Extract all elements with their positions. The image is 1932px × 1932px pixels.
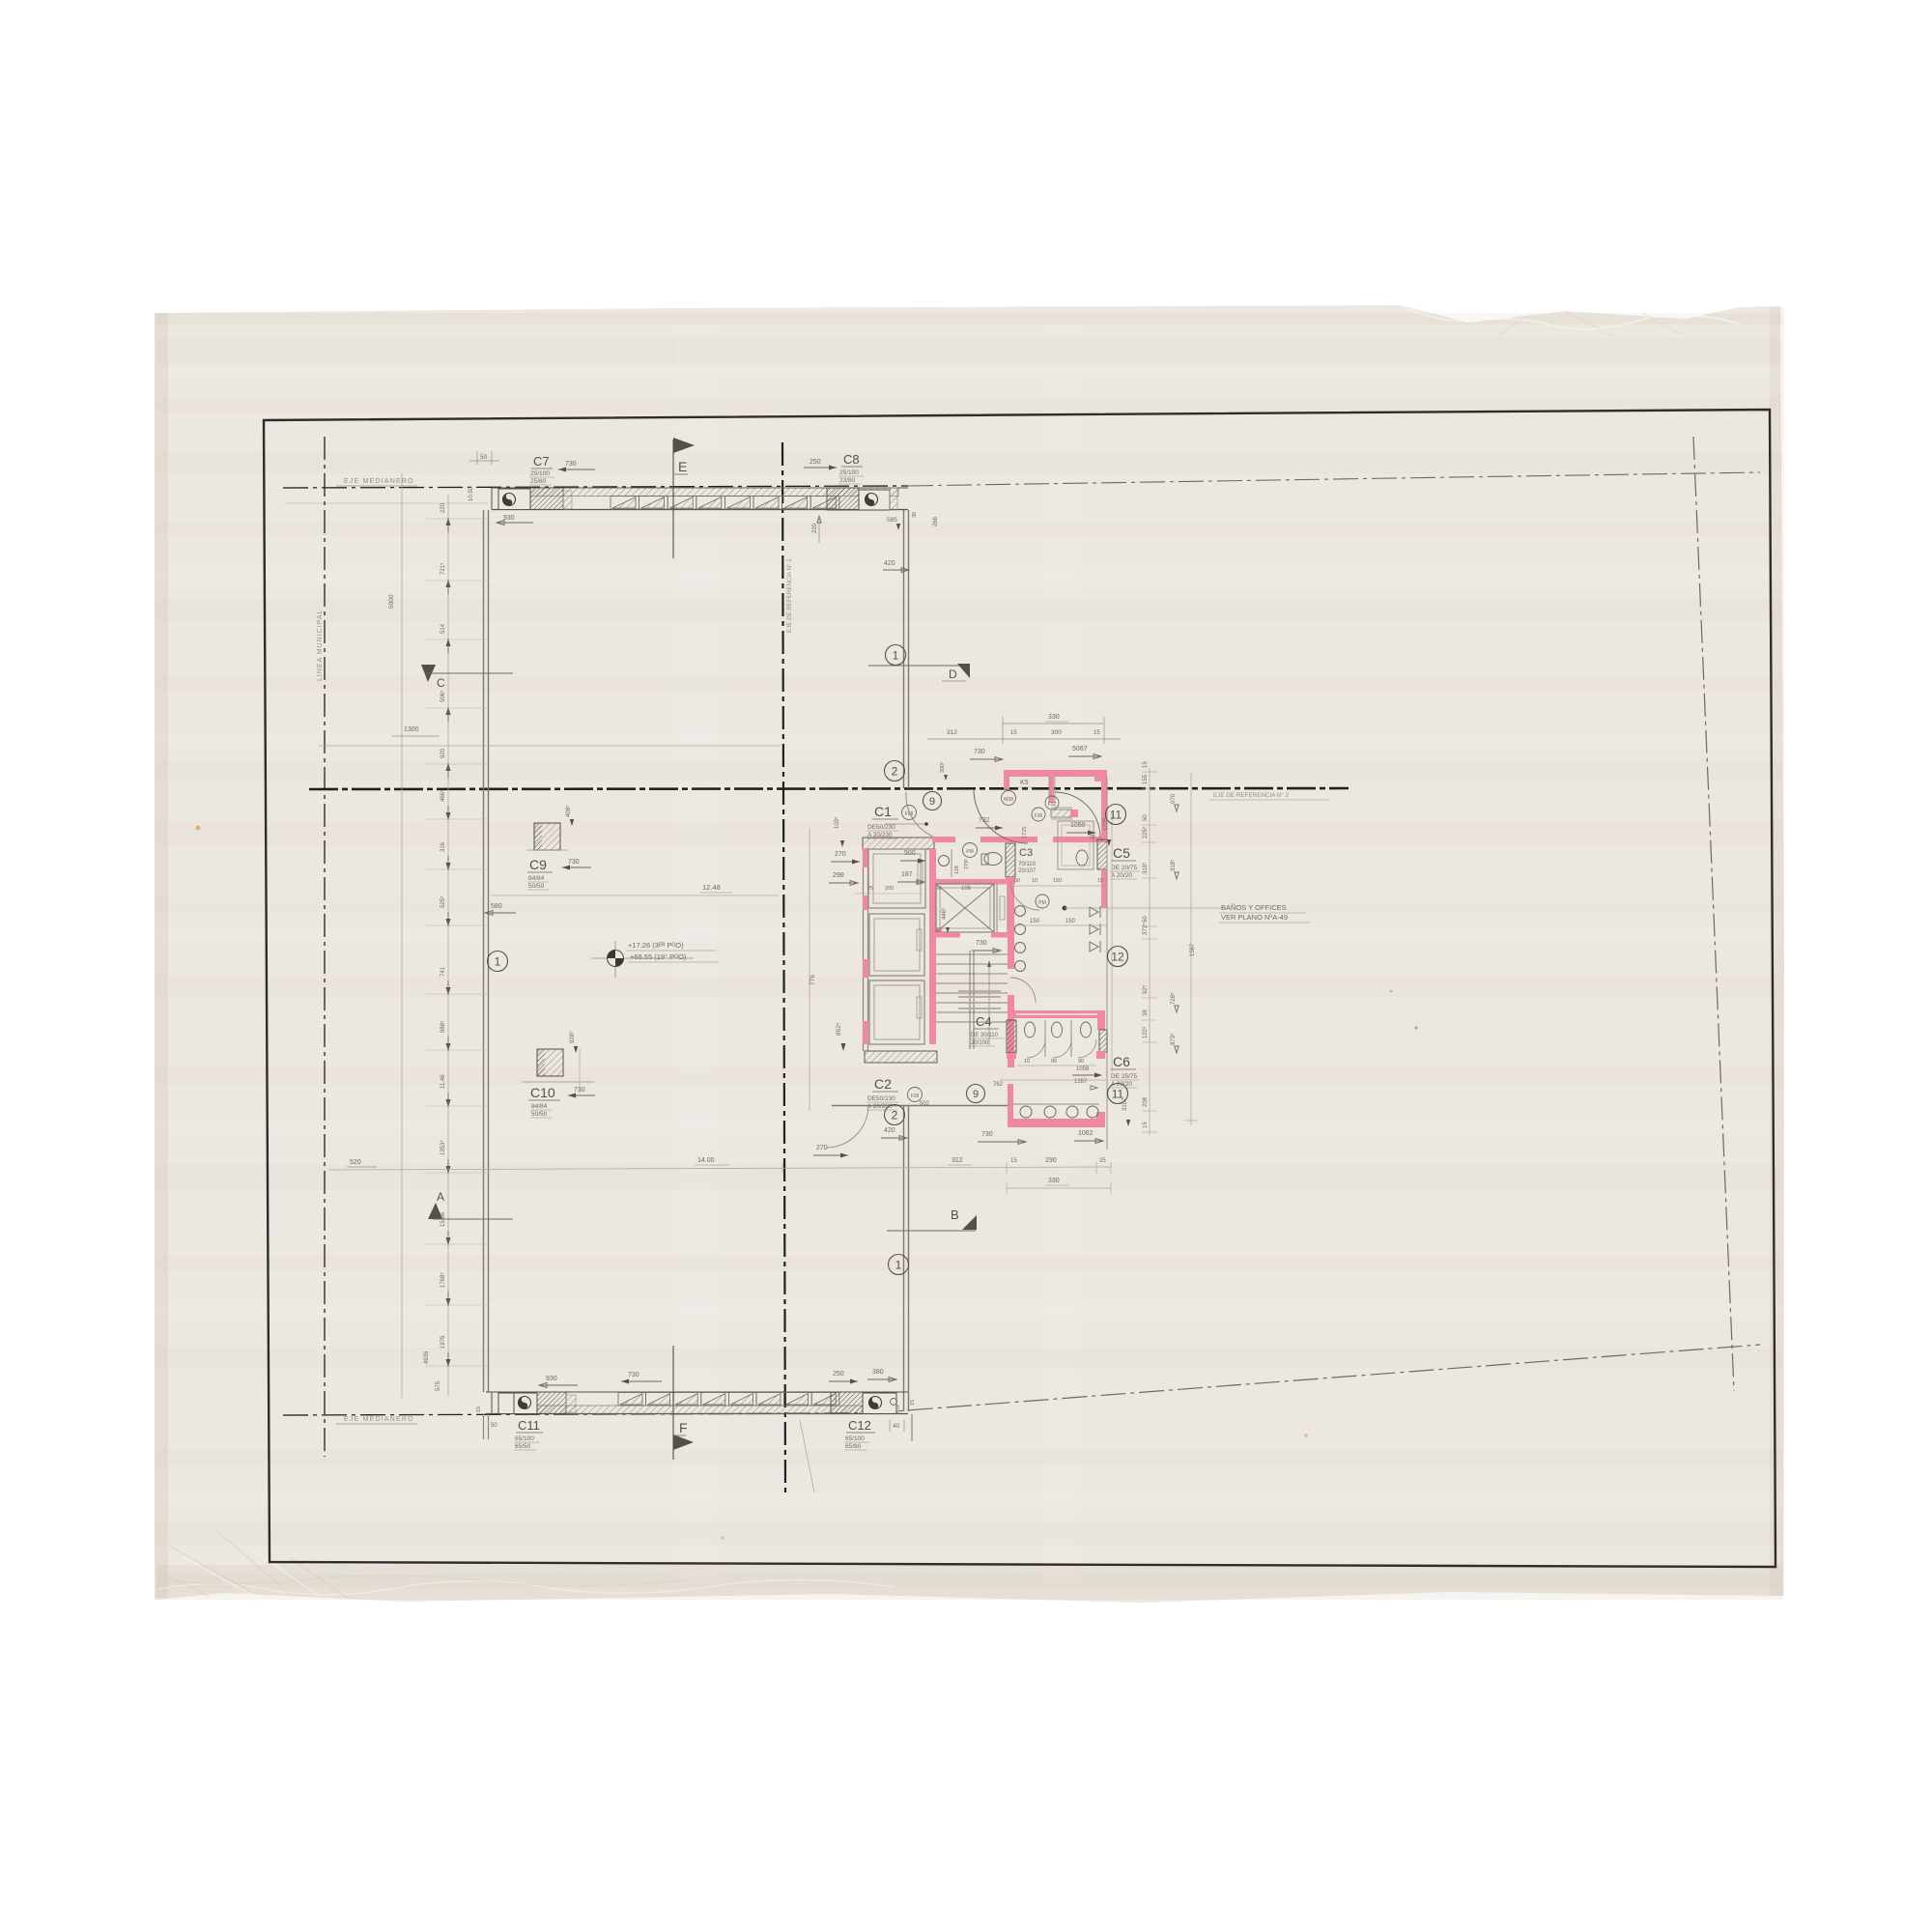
svg-text:150: 150	[1030, 919, 1040, 924]
svg-text:92⁵: 92⁵	[1142, 984, 1149, 994]
svg-text:1725: 1725	[1022, 827, 1028, 838]
svg-text:298: 298	[833, 872, 844, 879]
svg-text:466⁵: 466⁵	[440, 789, 446, 802]
svg-text:312: 312	[952, 1157, 963, 1164]
svg-text:220: 220	[812, 523, 818, 533]
svg-text:9: 9	[973, 1089, 979, 1100]
svg-text:15: 15	[1143, 1122, 1149, 1128]
svg-text:F: F	[679, 1420, 688, 1435]
svg-text:C12: C12	[848, 1418, 871, 1433]
svg-text:DE50/230: DE50/230	[867, 824, 895, 831]
svg-text:122⁸: 122⁸	[1142, 1026, 1149, 1038]
svg-text:15: 15	[910, 1400, 916, 1406]
svg-text:+17.26 (3ᴱᴿ PᴼO): +17.26 (3ᴱᴿ PᴼO)	[628, 941, 684, 950]
svg-text:+68.55 (19° PᴼO): +68.55 (19° PᴼO)	[630, 952, 687, 961]
svg-text:4935: 4935	[424, 1350, 430, 1364]
svg-text:15: 15	[476, 1406, 482, 1412]
svg-text:25: 25	[1090, 835, 1095, 840]
svg-text:D: D	[949, 668, 957, 681]
svg-text:730: 730	[976, 940, 987, 947]
svg-text:EJE DE REFERENCIA N° 1: EJE DE REFERENCIA N° 1	[786, 558, 793, 633]
svg-text:1300: 1300	[404, 726, 419, 733]
svg-text:65/50: 65/50	[515, 1443, 531, 1450]
svg-text:106: 106	[961, 886, 972, 892]
svg-text:270: 270	[816, 1145, 828, 1151]
svg-text:C4: C4	[976, 1014, 992, 1029]
svg-text:65/100: 65/100	[515, 1435, 534, 1442]
svg-text:11: 11	[1110, 808, 1122, 821]
svg-text:F32: F32	[1048, 802, 1057, 808]
svg-text:373⁵: 373⁵	[1142, 923, 1149, 935]
svg-text:1: 1	[893, 648, 899, 662]
svg-text:318⁵: 318⁵	[1170, 859, 1177, 871]
svg-text:PM: PM	[1038, 900, 1046, 906]
svg-text:65/100: 65/100	[845, 1435, 865, 1442]
svg-text:C5: C5	[1113, 845, 1130, 861]
svg-text:15: 15	[1094, 730, 1100, 736]
svg-text:84/84: 84/84	[528, 875, 545, 882]
svg-text:PM: PM	[966, 849, 974, 855]
svg-text:15: 15	[1010, 1158, 1017, 1164]
svg-text:266: 266	[933, 516, 939, 526]
svg-text:25/100: 25/100	[530, 470, 550, 477]
svg-text:20/107: 20/107	[1018, 868, 1037, 874]
svg-text:1058: 1058	[1076, 1066, 1090, 1072]
svg-text:20/100: 20/100	[971, 1040, 989, 1046]
svg-text:25: 25	[867, 886, 873, 892]
svg-text:1: 1	[895, 1258, 902, 1271]
svg-text:C10: C10	[530, 1085, 555, 1100]
svg-text:730: 730	[565, 461, 577, 468]
svg-text:220: 220	[440, 502, 446, 513]
svg-text:1050: 1050	[1070, 822, 1086, 829]
svg-text:5000: 5000	[388, 594, 395, 609]
svg-text:23/80: 23/80	[839, 477, 856, 484]
svg-text:65/80: 65/80	[845, 1443, 862, 1450]
svg-text:90: 90	[1078, 1059, 1084, 1065]
svg-text:EJE MEDIANERO: EJE MEDIANERO	[344, 478, 414, 485]
svg-text:270: 270	[835, 851, 846, 858]
svg-text:514: 514	[440, 623, 446, 634]
svg-text:LINEA MUNICIPAL: LINEA MUNICIPAL	[317, 610, 324, 681]
svg-text:A 20/20: A 20/20	[1111, 872, 1132, 879]
svg-text:312: 312	[947, 729, 957, 736]
svg-text:930: 930	[546, 1376, 557, 1382]
svg-text:118: 118	[954, 866, 960, 874]
svg-text:K5: K5	[1020, 780, 1029, 786]
svg-text:1062: 1062	[1078, 1130, 1094, 1137]
svg-text:575: 575	[436, 1380, 441, 1391]
svg-text:103⁵: 103⁵	[834, 816, 840, 829]
svg-text:300: 300	[1051, 729, 1062, 736]
svg-text:50: 50	[480, 454, 488, 461]
svg-text:1725: 1725	[1103, 817, 1109, 831]
svg-text:250: 250	[810, 459, 821, 466]
svg-text:732: 732	[979, 817, 990, 824]
svg-text:730: 730	[568, 859, 580, 866]
svg-text:DE 25/75: DE 25/75	[1111, 1073, 1137, 1080]
svg-text:225⁵: 225⁵	[1142, 826, 1149, 838]
svg-text:721⁵: 721⁵	[440, 562, 446, 575]
svg-text:C2: C2	[874, 1076, 892, 1092]
svg-text:585: 585	[887, 517, 897, 524]
svg-text:BAÑOS Y OFFICES: BAÑOS Y OFFICES	[1221, 903, 1287, 912]
svg-text:408⁵: 408⁵	[565, 805, 572, 817]
svg-text:40: 40	[893, 1423, 900, 1430]
svg-text:1353⁵: 1353⁵	[440, 1140, 446, 1155]
svg-text:205: 205	[885, 886, 894, 892]
svg-text:728⁵: 728⁵	[1170, 992, 1177, 1005]
svg-text:279⁵: 279⁵	[963, 859, 970, 869]
svg-text:25/100: 25/100	[839, 469, 859, 476]
svg-text:DE 30/110: DE 30/110	[971, 1033, 999, 1038]
svg-text:1287: 1287	[1074, 1079, 1088, 1085]
svg-text:3107: 3107	[1122, 1097, 1128, 1111]
svg-text:2: 2	[892, 1108, 898, 1122]
svg-text:873⁵: 873⁵	[1170, 1033, 1177, 1045]
svg-text:776: 776	[810, 975, 816, 985]
svg-text:C1: C1	[874, 804, 892, 819]
svg-text:155: 155	[1143, 774, 1149, 784]
svg-text:520: 520	[350, 1159, 361, 1166]
svg-text:B: B	[951, 1207, 959, 1222]
svg-text:1976: 1976	[440, 1335, 446, 1349]
svg-text:EJE MEDIANERO: EJE MEDIANERO	[344, 1416, 414, 1423]
svg-text:318⁵: 318⁵	[1142, 862, 1149, 874]
svg-text:9: 9	[929, 796, 935, 808]
svg-text:12: 12	[1111, 950, 1124, 963]
svg-text:50: 50	[491, 1423, 497, 1429]
svg-text:730: 730	[974, 749, 985, 755]
svg-text:25/80: 25/80	[530, 478, 547, 485]
svg-text:15: 15	[1143, 761, 1149, 768]
svg-text:920: 920	[440, 748, 446, 758]
svg-text:1: 1	[495, 954, 501, 968]
svg-text:580: 580	[491, 903, 502, 910]
svg-text:E: E	[678, 459, 687, 474]
svg-text:50: 50	[1014, 878, 1020, 884]
svg-text:988⁵: 988⁵	[440, 1020, 446, 1033]
svg-text:50: 50	[1143, 814, 1149, 821]
svg-text:50/50: 50/50	[531, 1111, 548, 1118]
svg-text:C6: C6	[1113, 1054, 1130, 1069]
svg-text:250: 250	[833, 1371, 844, 1378]
svg-text:1567: 1567	[1190, 943, 1196, 956]
svg-text:C9: C9	[529, 857, 547, 872]
svg-text:380: 380	[872, 1369, 884, 1376]
svg-text:762: 762	[993, 1082, 1004, 1088]
svg-text:928⁵: 928⁵	[569, 1031, 576, 1043]
svg-text:15: 15	[1010, 730, 1017, 736]
svg-text:420: 420	[884, 560, 895, 567]
svg-text:30: 30	[912, 512, 918, 518]
svg-text:730: 730	[628, 1372, 639, 1378]
svg-text:38: 38	[1143, 1009, 1149, 1016]
svg-text:14.00: 14.00	[697, 1157, 715, 1164]
svg-text:1768⁵: 1768⁵	[440, 1272, 446, 1288]
svg-text:10: 10	[1024, 1059, 1030, 1065]
svg-text:330: 330	[1048, 1178, 1060, 1184]
svg-text:5067: 5067	[1072, 746, 1088, 753]
svg-text:90: 90	[1051, 1059, 1057, 1065]
svg-text:F28: F28	[911, 1094, 920, 1099]
svg-text:070: 070	[1171, 793, 1177, 804]
svg-text:290: 290	[1045, 1157, 1057, 1164]
svg-text:C11: C11	[518, 1418, 540, 1433]
svg-text:525⁵: 525⁵	[440, 895, 446, 908]
svg-text:852⁵: 852⁵	[836, 1022, 842, 1036]
svg-text:502: 502	[920, 1101, 930, 1107]
svg-text:15: 15	[1097, 878, 1103, 884]
svg-text:F28: F28	[905, 811, 914, 817]
svg-text:F36: F36	[1035, 813, 1043, 819]
svg-text:10.50: 10.50	[469, 486, 474, 501]
svg-text:C: C	[437, 676, 445, 690]
svg-text:150: 150	[1065, 919, 1076, 924]
svg-text:A 20/230: A 20/230	[867, 1103, 893, 1110]
svg-text:A 20/230: A 20/230	[867, 832, 893, 838]
svg-text:M: M	[937, 886, 942, 892]
svg-text:200⁵: 200⁵	[939, 762, 946, 773]
svg-text:C3: C3	[1019, 847, 1033, 859]
svg-text:C7: C7	[533, 454, 550, 469]
svg-text:A: A	[437, 1190, 444, 1204]
svg-text:11.46: 11.46	[440, 1074, 446, 1089]
svg-text:330: 330	[1048, 714, 1060, 721]
svg-text:50/50: 50/50	[528, 883, 545, 890]
svg-text:730: 730	[981, 1131, 993, 1138]
svg-text:930: 930	[503, 515, 515, 522]
svg-text:84/84: 84/84	[531, 1103, 548, 1110]
svg-text:VER PLANO NºA-49: VER PLANO NºA-49	[1221, 913, 1288, 922]
svg-text:10: 10	[1032, 878, 1037, 884]
svg-text:70/110: 70/110	[1018, 862, 1037, 867]
svg-text:500: 500	[904, 850, 916, 857]
svg-text:187: 187	[901, 871, 913, 878]
svg-text:2: 2	[892, 764, 898, 778]
svg-text:DE 20/75: DE 20/75	[1111, 865, 1137, 871]
svg-text:C8: C8	[843, 452, 860, 467]
svg-text:506⁵: 506⁵	[440, 690, 446, 702]
svg-text:741: 741	[440, 966, 446, 977]
svg-text:12.48: 12.48	[702, 883, 721, 892]
svg-text:150: 150	[1053, 878, 1062, 884]
svg-text:316: 316	[440, 841, 446, 852]
svg-text:446⁵: 446⁵	[941, 907, 948, 920]
svg-text:DE50/230: DE50/230	[867, 1095, 895, 1102]
svg-text:EJE DE REFERENCIA N° 2: EJE DE REFERENCIA N° 2	[1213, 791, 1290, 799]
svg-text:25: 25	[1099, 1158, 1106, 1164]
svg-text:M38: M38	[1004, 797, 1013, 803]
svg-text:50: 50	[1143, 916, 1149, 923]
svg-text:208: 208	[1143, 1096, 1149, 1107]
svg-text:420: 420	[884, 1127, 895, 1134]
